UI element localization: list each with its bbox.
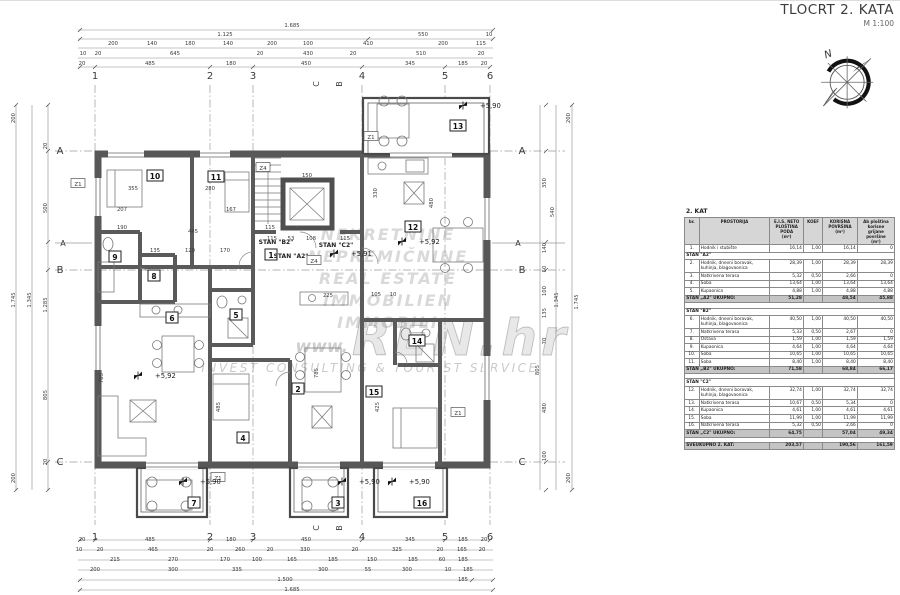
dim-label: 170: [220, 557, 231, 563]
table-cell: 16,14: [770, 245, 804, 253]
table-cell: 1,00: [804, 260, 823, 273]
dim-label: 140: [223, 41, 234, 47]
grid-col-label: 6: [487, 532, 493, 543]
room-number: 11: [211, 173, 221, 182]
table-cell: STAN „A2" UKUPNO:: [685, 295, 770, 303]
table-row: 1.Hodnik i stubište16,141,0016,140: [685, 245, 895, 253]
room-number: 5: [233, 311, 238, 320]
table-cell: [804, 442, 823, 450]
table-cell: 5,32: [770, 422, 804, 430]
table-cell: Kupaonica: [699, 288, 770, 296]
elevation-value: +5,92: [419, 238, 440, 246]
table-cell: 10,65: [823, 351, 858, 359]
compass-rose: N: [812, 46, 880, 114]
apartment-label: STAN "B2": [259, 239, 294, 246]
table-cell: [804, 366, 823, 374]
table-cell: 32,74: [770, 387, 804, 400]
dim-label: 20: [267, 547, 274, 553]
dim-label: 1.125: [217, 32, 232, 38]
table-cell: Soba: [699, 415, 770, 423]
table-cell: 16.: [685, 422, 700, 430]
dim-label: 165: [457, 547, 467, 553]
section-mark-label: B: [335, 525, 344, 531]
dim-label: 200: [566, 472, 572, 483]
table-cell: 32,74: [823, 387, 858, 400]
table-cell: STAN "A2": [685, 252, 895, 260]
table-cell: 8,40: [857, 359, 894, 367]
table-cell: 0: [857, 329, 894, 337]
table-cell: 10,65: [857, 351, 894, 359]
north-label: N: [823, 48, 834, 61]
table-cell: Soba: [699, 359, 770, 367]
room-number: 15: [369, 388, 379, 397]
table-cell: 71,58: [770, 366, 804, 374]
table-cell: STAN „B2" UKUPNO:: [685, 366, 770, 374]
dim-label: 805: [535, 365, 541, 375]
table-cell: 4,88: [823, 288, 858, 296]
table-row: 13.Natkrivena terasa10,670,505,340: [685, 399, 895, 407]
dim-label: 485: [216, 402, 222, 412]
z-label: Z1: [367, 135, 374, 141]
room-number: 10: [150, 172, 160, 181]
table-row: 9.Kupaonica4,641,004,644,64: [685, 344, 895, 352]
dim-label: 1.685: [284, 23, 299, 29]
z-label: Z1: [74, 182, 81, 188]
grid-row-label: B: [57, 265, 64, 276]
dim-label: 425: [375, 402, 381, 412]
dim-label: 260: [235, 547, 246, 553]
table-cell: 32,74: [857, 387, 894, 400]
table-cell: 9.: [685, 344, 700, 352]
dim-label: 20: [257, 51, 264, 57]
dim-label: 705: [99, 373, 105, 383]
table-cell: 4,61: [770, 407, 804, 415]
dim-label: 785: [314, 368, 320, 378]
table-cell: 1,00: [804, 316, 823, 329]
z-label: Z4: [259, 166, 267, 172]
table-cell: 49,34: [857, 430, 894, 438]
table-row: STAN "A2": [685, 252, 895, 260]
table-cell: PROSTORIJA: [699, 218, 770, 245]
dim-label: 170: [220, 248, 231, 254]
elevation-value: +5,90: [359, 478, 380, 486]
table-row: STAN "B2": [685, 308, 895, 316]
dim-label: 165: [287, 557, 297, 563]
room-number: 4: [240, 434, 245, 443]
bed: [213, 374, 249, 420]
dim-label: 200: [11, 472, 17, 483]
table-row: 2.Hodnik, dnevni boravak, kuhinja, blago…: [685, 260, 895, 273]
table-cell: 57,04: [823, 430, 858, 438]
dim-label: 280: [205, 186, 216, 192]
sofa: [98, 396, 156, 456]
dim-label: 10: [80, 51, 87, 57]
table-cell: Natkrivena terasa: [699, 273, 770, 281]
dim-label: 645: [170, 51, 180, 57]
section-mark-label: A: [60, 239, 66, 248]
dim-label: 150: [367, 557, 378, 563]
table-cell: 4,88: [857, 288, 894, 296]
floor-plan: NEKRETNINENEPREMIČNINEREAL ESTATEIMMOBIL…: [0, 0, 680, 595]
section-mark-label: C: [312, 81, 321, 87]
dim-label: 345: [405, 537, 415, 543]
grid-col-label: 2: [207, 71, 213, 82]
z-label: Z1: [454, 411, 461, 417]
dim-label: 115: [476, 41, 486, 47]
dim-label: 20: [97, 547, 104, 553]
dim-label: 335: [232, 567, 242, 573]
table-cell: 68,84: [823, 366, 858, 374]
dim-label: 465: [148, 547, 158, 553]
dim-label: 355: [128, 186, 138, 192]
dim-label: 550: [418, 32, 429, 38]
dim-label: 108: [306, 236, 317, 242]
table-cell: 66,17: [857, 366, 894, 374]
dim-label: 135: [150, 248, 160, 254]
dim-label: 1.685: [284, 587, 299, 593]
table-cell: 8.: [685, 336, 700, 344]
table-cell: Hodnik, dnevni boravak, kuhinja, blagova…: [699, 387, 770, 400]
table-cell: 45,88: [857, 295, 894, 303]
dim-label: 410: [363, 41, 374, 47]
table-cell: 13,64: [770, 280, 804, 288]
table-row: 12.Hodnik, dnevni boravak, kuhinja, blag…: [685, 387, 895, 400]
table-cell: 10,67: [770, 399, 804, 407]
dim-label: 185: [458, 577, 468, 583]
dim-label: 20: [479, 547, 486, 553]
coffee-table: [312, 406, 332, 428]
table-cell: 16,14: [823, 245, 858, 253]
table-row: STAN "C2": [685, 379, 895, 387]
dim-label: 20: [79, 537, 86, 543]
dim-label: 20: [478, 51, 485, 57]
apartment-label: STAN "A2": [274, 253, 309, 260]
title-block: TLOCRT 2. KATA M 1:100: [780, 2, 894, 28]
area-table-block: 2. KAT br.PROSTORIJAE.I.S. NETO PLOŠTINA…: [684, 208, 895, 450]
watermark-language: NEPREMIČNINE: [308, 246, 469, 266]
table-cell: 2,66: [823, 273, 858, 281]
dim-label: 185: [458, 61, 468, 67]
room-number: 8: [151, 272, 156, 281]
table-cell: Ostava: [699, 336, 770, 344]
dim-label: 190: [117, 225, 128, 231]
table-cell: 2,67: [823, 329, 858, 337]
table-cell: [804, 295, 823, 303]
table-cell: [804, 430, 823, 438]
table-cell: Natkrivena terasa: [699, 422, 770, 430]
z-label: Z4: [310, 259, 318, 265]
table-cell: 5,32: [770, 273, 804, 281]
table-cell: 1,00: [804, 407, 823, 415]
dim-label: 55: [365, 567, 372, 573]
dim-label: 330: [300, 547, 311, 553]
dim-label: 10: [445, 567, 452, 573]
dim-label: 120: [185, 248, 196, 254]
dim-label: 200: [11, 112, 17, 123]
dim-label: 1.345: [27, 292, 33, 307]
table-cell: 40,50: [823, 316, 858, 329]
dim-label: 450: [301, 61, 312, 67]
dim-label: 140: [147, 41, 158, 47]
dim-label: 105: [371, 292, 381, 298]
grid-col-label: 1: [92, 71, 98, 82]
table-cell: 0: [857, 399, 894, 407]
table-cell: 28,39: [823, 260, 858, 273]
dim-label: 10: [76, 547, 83, 553]
table-cell: 13.: [685, 399, 700, 407]
table-cell: Kupaonica: [699, 344, 770, 352]
table-row: STAN „C2" UKUPNO:64,7557,0449,34: [685, 430, 895, 438]
grid-row-label: C: [57, 457, 64, 468]
table-cell: 28,39: [857, 260, 894, 273]
dim-label: 300: [402, 567, 413, 573]
room-number: 6: [169, 314, 174, 323]
grid-col-label: 1: [92, 532, 98, 543]
dim-label: 207: [117, 207, 127, 213]
table-cell: 1,59: [823, 336, 858, 344]
table-row: 14.Kupaonica4,611,004,614,61: [685, 407, 895, 415]
table-cell: Hodnik, dnevni boravak, kuhinja, blagova…: [699, 316, 770, 329]
table-row: 15.Soba11,991,0011,9911,99: [685, 415, 895, 423]
dim-label: 20: [207, 547, 214, 553]
table-cell: 4,64: [823, 344, 858, 352]
table-cell: 0: [857, 422, 894, 430]
dim-label: 345: [405, 61, 415, 67]
elevation-value: +5,90: [409, 478, 430, 486]
dim-label: 185: [463, 567, 473, 573]
elevation-value: +5,92: [155, 372, 176, 380]
dim-label: 1.500: [277, 577, 293, 583]
dim-label: 185: [328, 557, 338, 563]
table-cell: Ab ploština korisne grijane površine (m²…: [857, 218, 894, 245]
area-table: br.PROSTORIJAE.I.S. NETO PLOŠTINA PODA (…: [684, 217, 895, 450]
room-number: 12: [408, 223, 418, 232]
table-cell: Natkrivena terasa: [699, 399, 770, 407]
table-cell: 4,64: [770, 344, 804, 352]
table-cell: Soba: [699, 280, 770, 288]
dim-label: 300: [318, 567, 329, 573]
dim-label: 100: [542, 450, 548, 461]
table-cell: 1,00: [804, 336, 823, 344]
table-row: SVEUKUPNO 2. KAT:203,57190,56161,59: [685, 442, 895, 450]
sheet-scale: M 1:100: [780, 19, 894, 28]
dim-label: 50: [542, 265, 548, 272]
grid-col-label: 2: [207, 532, 213, 543]
table-row: STAN „A2" UKUPNO:51,2848,5445,88: [685, 295, 895, 303]
room-number: 16: [417, 499, 427, 508]
bed: [225, 172, 249, 212]
grid-col-label: 4: [359, 71, 365, 82]
table-row: STAN „B2" UKUPNO:71,5868,8466,17: [685, 366, 895, 374]
table-cell: 1.: [685, 245, 700, 253]
dim-label: 150: [302, 173, 313, 179]
table-row: 11.Soba8,401,008,408,40: [685, 359, 895, 367]
dim-label: 20: [350, 51, 357, 57]
table-cell: 190,56: [823, 442, 858, 450]
dim-label: 185: [458, 557, 468, 563]
dim-label: 20: [437, 547, 444, 553]
watermark-language: REAL ESTATE: [319, 269, 457, 288]
dim-label: 185: [408, 557, 418, 563]
table-row: 16.Natkrivena terasa5,320,502,660: [685, 422, 895, 430]
table-cell: 11,99: [857, 415, 894, 423]
table-floor-label: 2. KAT: [686, 208, 895, 215]
dim-label: 200: [438, 41, 449, 47]
coffee-table: [404, 182, 424, 204]
dim-label: 70: [542, 337, 548, 344]
table-cell: 2.: [685, 260, 700, 273]
dim-label: 140: [542, 242, 548, 253]
table-cell: STAN "C2": [685, 379, 895, 387]
grid-col-label: 3: [250, 532, 256, 543]
table-row: 3.Natkrivena terasa5,320,502,660: [685, 273, 895, 281]
dim-label: 10: [486, 32, 493, 38]
dim-label: 10: [390, 292, 397, 298]
dim-label: 200: [90, 567, 101, 573]
table-cell: KORISNA POVRŠINA (m²): [823, 218, 858, 245]
dim-label: 167: [226, 207, 236, 213]
dim-label: 325: [392, 547, 402, 553]
table-cell: 5.: [685, 288, 700, 296]
dim-label: 20: [43, 142, 49, 149]
table-cell: 13,64: [823, 280, 858, 288]
table-cell: 1,59: [857, 336, 894, 344]
dim-label: 20: [95, 51, 102, 57]
table-cell: 0: [857, 273, 894, 281]
table-cell: 40,50: [857, 316, 894, 329]
grid-row-label: B: [519, 265, 526, 276]
dim-label: 1.745: [11, 292, 17, 307]
dim-label: 1.745: [574, 294, 580, 309]
dim-label: 180: [226, 537, 237, 543]
table-cell: 10.: [685, 351, 700, 359]
table-cell: 161,59: [857, 442, 894, 450]
table-cell: 1,00: [804, 359, 823, 367]
dim-label: 180: [185, 41, 196, 47]
dim-label: 450: [301, 537, 312, 543]
dim-label: 180: [226, 61, 237, 67]
table-cell: br.: [685, 218, 700, 245]
dim-label: 485: [145, 61, 155, 67]
table-cell: Hodnik, dnevni boravak, kuhinja, blagova…: [699, 260, 770, 273]
room-number: 3: [335, 499, 340, 508]
dim-label: 1.345: [554, 292, 560, 307]
table-cell: 7.: [685, 329, 700, 337]
dim-label: 485: [145, 537, 155, 543]
table-cell: 203,57: [770, 442, 804, 450]
room-number: 13: [453, 122, 463, 131]
dim-label: 185: [458, 537, 468, 543]
grid-row-label: A: [57, 146, 64, 157]
dim-label: 215: [110, 557, 120, 563]
table-cell: 11,99: [770, 415, 804, 423]
dim-label: 540: [550, 206, 556, 217]
dim-label: 480: [542, 402, 548, 413]
watermark-language: IMMOBILIEN: [323, 291, 453, 310]
table-cell: 14.: [685, 407, 700, 415]
table-cell: 1,59: [770, 336, 804, 344]
table-row: 8.Ostava1,591,001,591,59: [685, 336, 895, 344]
table-cell: 1,00: [804, 245, 823, 253]
table-cell: 40,50: [770, 316, 804, 329]
dim-label: 445: [188, 229, 198, 235]
dim-label: 20: [79, 61, 86, 67]
dim-label: 20: [43, 458, 49, 465]
dim-label: 500: [43, 202, 49, 213]
table-cell: KOEF: [804, 218, 823, 245]
grid-col-label: 5: [442, 532, 448, 543]
section-mark-label: A: [515, 239, 521, 248]
table-cell: 28,39: [770, 260, 804, 273]
dim-label: 60: [439, 557, 446, 563]
table-cell: 1,00: [804, 351, 823, 359]
room-number: 14: [412, 337, 422, 346]
table-cell: 4.: [685, 280, 700, 288]
table-row: 7.Natkrivena terasa5,330,502,670: [685, 329, 895, 337]
room-number: 2: [295, 385, 300, 394]
dim-label: 330: [373, 187, 379, 198]
table-row: 10.Soba10,651,0010,6510,65: [685, 351, 895, 359]
table-cell: 1,00: [804, 387, 823, 400]
dim-label: 200: [108, 41, 119, 47]
dim-label: 100: [252, 557, 263, 563]
kitchen-counter: [368, 158, 428, 174]
table-cell: 3.: [685, 273, 700, 281]
dim-label: 1.285: [43, 297, 49, 312]
table-cell: 0,50: [804, 273, 823, 281]
grid-col-label: 3: [250, 71, 256, 82]
dim-label: 510: [416, 51, 427, 57]
table-cell: 4,61: [823, 407, 858, 415]
table-cell: 5,34: [823, 399, 858, 407]
room-number: 9: [112, 253, 117, 262]
table-cell: 1,00: [804, 280, 823, 288]
table-cell: 0,50: [804, 422, 823, 430]
dim-label: 100: [542, 285, 548, 296]
table-cell: 5,33: [770, 329, 804, 337]
table-cell: 4,88: [770, 288, 804, 296]
table-cell: 0: [857, 245, 894, 253]
table-cell: 10,65: [770, 351, 804, 359]
grid-col-label: 6: [487, 71, 493, 82]
table-cell: Natkrivena terasa: [699, 329, 770, 337]
table-cell: 6.: [685, 316, 700, 329]
dim-label: 20: [352, 547, 359, 553]
elevation-value: +5,90: [200, 478, 221, 486]
table-cell: 2,66: [823, 422, 858, 430]
dim-label: 200: [267, 41, 278, 47]
table-cell: 1,00: [804, 415, 823, 423]
section-mark-label: B: [335, 81, 344, 87]
dining-table: [153, 336, 204, 372]
bed: [393, 408, 437, 448]
sheet-title: TLOCRT 2. KATA: [780, 2, 894, 18]
dim-label: 20: [481, 61, 488, 67]
table-row: 5.Kupaonica4,881,004,884,88: [685, 288, 895, 296]
table-cell: Kupaonica: [699, 407, 770, 415]
room-number: 7: [191, 499, 196, 508]
table-cell: 12.: [685, 387, 700, 400]
table-row: 4.Soba13,641,0013,6413,64: [685, 280, 895, 288]
dim-label: 200: [566, 112, 572, 123]
grid-col-label: 4: [359, 532, 365, 543]
table-cell: STAN „C2" UKUPNO:: [685, 430, 770, 438]
dim-label: 805: [43, 390, 49, 400]
grid-row-label: A: [519, 146, 526, 157]
table-cell: Hodnik i stubište: [699, 245, 770, 253]
table-cell: 8,40: [770, 359, 804, 367]
drawing-sheet: NEKRETNINENEPREMIČNINEREAL ESTATEIMMOBIL…: [0, 0, 900, 595]
